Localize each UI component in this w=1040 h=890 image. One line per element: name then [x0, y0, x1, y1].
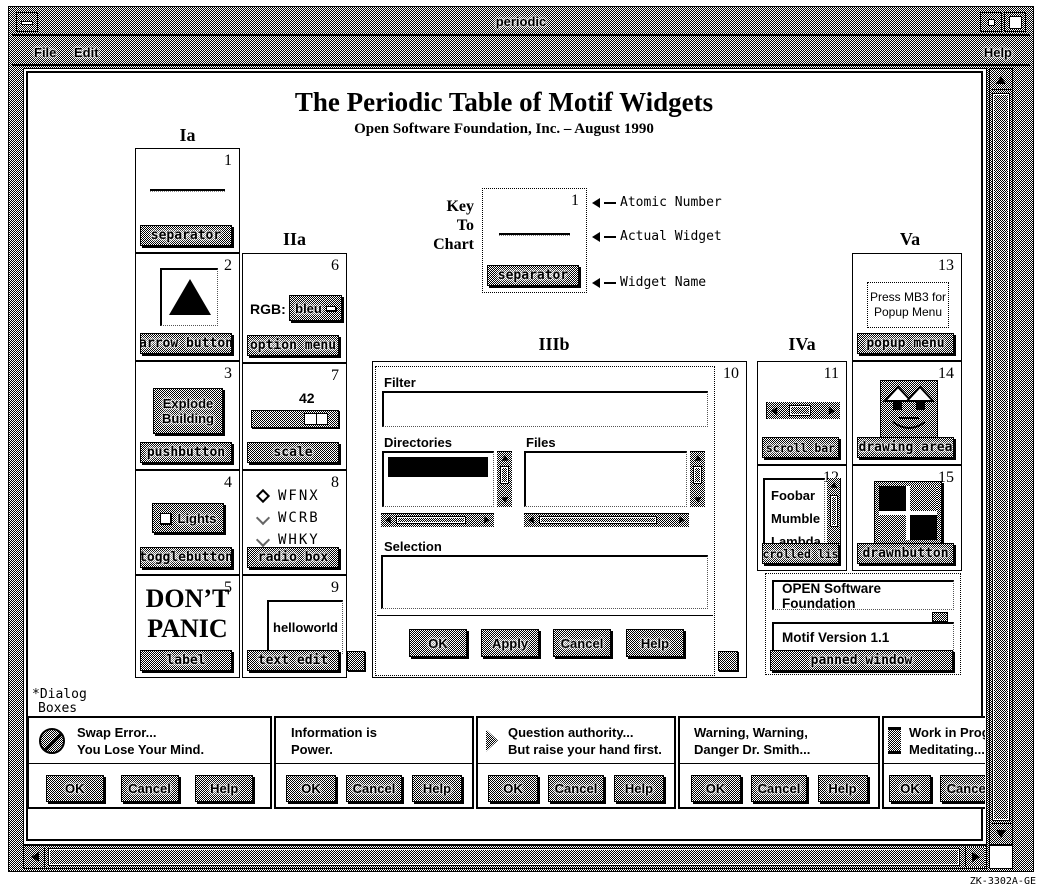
atomic-number: 14	[938, 365, 954, 383]
ok-button[interactable]: OK	[889, 775, 931, 802]
right-arrow-icon	[972, 852, 980, 862]
cell-file-selection: 10 Filter Directories Files	[372, 361, 747, 678]
scrollbar-thumb[interactable]	[693, 466, 702, 484]
key-sample-cell: 1 separator	[482, 188, 587, 293]
left-arrow-icon[interactable]	[528, 517, 534, 524]
atomic-number: 1	[224, 152, 232, 170]
right-arrow-icon[interactable]	[679, 517, 685, 524]
directories-vertical-scrollbar[interactable]	[497, 451, 512, 507]
pane-top: OPEN Software Foundation	[772, 580, 954, 610]
up-arrow-icon[interactable]	[502, 455, 509, 461]
separator-widget	[150, 189, 225, 192]
left-arrow-icon	[592, 232, 600, 242]
selection-input[interactable]	[381, 555, 708, 609]
cell-drawnbutton: 15 drawnbutton	[852, 465, 962, 571]
warning-dialog: Warning, Warning,Danger Dr. Smith... OK …	[678, 716, 880, 809]
scrollbar-down-button[interactable]	[991, 823, 1011, 843]
minimize-icon	[988, 19, 995, 26]
window-title: periodic	[12, 14, 1030, 29]
dialog-boxes-footnote: *Dialog Boxes	[32, 688, 87, 716]
scale-value: 42	[299, 390, 315, 406]
face-drawing-icon	[881, 381, 937, 437]
up-arrow-icon[interactable]	[695, 455, 702, 461]
popup-menu-widget[interactable]: Press MB3 for Popup Menu	[867, 282, 949, 328]
widget-name-button[interactable]: popup menu	[857, 333, 954, 354]
error-icon	[39, 728, 65, 754]
cell-togglebutton: 4 Lights togglebutton	[135, 470, 240, 575]
option-menu-indicator-icon	[326, 306, 336, 311]
menu-help[interactable]: Help	[984, 45, 1012, 60]
files-label: Files	[526, 435, 556, 450]
atomic-number: 9	[331, 579, 339, 597]
vertical-scrollbar[interactable]	[989, 68, 1013, 845]
widget-name-button[interactable]: panned window	[770, 650, 953, 671]
maximize-icon	[1009, 16, 1022, 29]
information-dialog: Information isPower. OK Cancel Help	[274, 716, 474, 809]
atomic-number: 2	[224, 257, 232, 275]
down-arrow-icon	[996, 830, 1006, 838]
rgb-label: RGB:	[250, 301, 286, 317]
widget-name-button[interactable]: drawnbutton	[857, 543, 954, 564]
column-header-iia: IIa	[267, 229, 322, 250]
widget-name-button[interactable]: drawing area	[857, 437, 954, 458]
menu-file[interactable]: File	[34, 45, 56, 60]
menu-edit[interactable]: Edit	[74, 45, 99, 60]
widget-name-button[interactable]: scale	[247, 442, 339, 463]
scrollbar-left-button[interactable]	[25, 847, 45, 867]
widget-name-button[interactable]: scrolled list	[762, 543, 839, 564]
clipped-widget-name-button	[718, 651, 738, 671]
dialog-separator	[377, 615, 713, 616]
up-arrow-icon	[996, 76, 1006, 84]
cell-scale: 7 42 scale	[242, 363, 347, 470]
radio-unselected-icon	[256, 533, 270, 547]
drawnbutton-widget[interactable]	[874, 481, 942, 545]
filter-label: Filter	[384, 375, 416, 390]
titlebar[interactable]: periodic	[12, 10, 1030, 36]
scrollbar-right-button[interactable]	[965, 847, 985, 867]
radio-unselected-icon	[256, 511, 270, 525]
ok-button[interactable]: OK	[46, 775, 104, 802]
radio-option-wcrb[interactable]: WCRB	[258, 507, 320, 529]
widget-name-button[interactable]: separator	[140, 225, 232, 246]
column-header-iva: IVa	[767, 334, 837, 355]
checkbox-icon	[160, 513, 171, 524]
list-item[interactable]: Foobar	[771, 484, 824, 507]
right-arrow-icon[interactable]	[829, 407, 835, 415]
menubar: File Edit Help	[12, 38, 1030, 66]
atomic-number: 6	[331, 257, 339, 275]
cell-option-menu: 6 RGB: bleu option menu	[242, 253, 347, 363]
cell-pushbutton: 3 Explode Building pushbutton	[135, 361, 240, 470]
scrollbar-thumb[interactable]	[992, 93, 1010, 821]
up-arrow-icon	[169, 279, 211, 315]
list-item[interactable]: Mumble	[771, 507, 824, 530]
left-arrow-icon[interactable]	[385, 517, 391, 524]
explode-building-button[interactable]: Explode Building	[153, 388, 223, 434]
key-annotation-widget-name: Widget Name	[592, 275, 706, 290]
screenshot-canvas: periodic File Edit Help The Periodic Tab…	[0, 0, 1040, 890]
scrollbar-thumb[interactable]	[789, 405, 811, 416]
scroll-bar-widget[interactable]	[766, 402, 840, 419]
cancel-button[interactable]: Cancel	[121, 775, 179, 802]
files-horizontal-scrollbar[interactable]	[524, 513, 689, 527]
cell-arrow-button: 2 arrow button	[135, 253, 240, 361]
question-dialog: Question authority...But raise your hand…	[476, 716, 676, 809]
directories-selected-item[interactable]	[388, 457, 488, 477]
horizontal-scrollbar[interactable]	[23, 845, 987, 869]
cell-text-edit: 9 helloworld text edit	[242, 575, 347, 678]
directories-list[interactable]	[382, 451, 494, 507]
cell-drawing-area: 14 drawing area	[852, 361, 962, 465]
working-dialog: Work in ProgressMeditating... OK Cancel	[882, 716, 985, 809]
selection-label: Selection	[384, 539, 442, 554]
drawnbutton-tile-checker	[910, 486, 937, 511]
ok-button[interactable]: OK	[286, 775, 336, 802]
option-menu-button[interactable]: bleu	[289, 295, 342, 321]
filter-input[interactable]	[382, 391, 708, 427]
cell-radio-box: 8 WFNX WCRB WHKY radio box	[242, 470, 347, 575]
cell-scrolled-list: 12 Foobar Mumble Lambda scrolled list	[757, 465, 847, 571]
key-widget-name-button: separator	[487, 265, 579, 286]
key-atomic-number: 1	[571, 192, 579, 210]
pane-sash-handle[interactable]	[932, 612, 948, 622]
widget-name-button[interactable]: radio box	[247, 547, 339, 568]
key-annotation-actual-widget: Actual Widget	[592, 229, 722, 244]
atomic-number: 4	[224, 474, 232, 492]
directories-horizontal-scrollbar[interactable]	[381, 513, 494, 527]
figure-id: ZK-3302A-GE	[970, 876, 1036, 887]
page-subtitle: Open Software Foundation, Inc. – August …	[154, 121, 854, 138]
up-arrow-icon[interactable]	[831, 482, 838, 488]
lights-toggle-button[interactable]: Lights	[152, 503, 224, 533]
page-title: The Periodic Table of Motif Widgets	[154, 87, 854, 118]
scrollbar-thumb[interactable]	[500, 466, 509, 484]
dialog-row: Swap Error...You Lose Your Mind. OK Canc…	[27, 716, 985, 809]
widget-name-button[interactable]: option menu	[247, 335, 339, 356]
scale-thumb[interactable]	[304, 413, 328, 425]
files-vertical-scrollbar[interactable]	[690, 451, 705, 507]
down-arrow-icon[interactable]	[695, 497, 702, 503]
dont-panic-label: DON’TPANIC	[136, 584, 239, 644]
right-arrow-icon[interactable]	[484, 517, 490, 524]
scrollbar-thumb[interactable]	[539, 516, 657, 524]
ok-button[interactable]: OK	[691, 775, 741, 802]
help-button[interactable]: Help	[614, 775, 664, 802]
widget-name-button[interactable]: label	[140, 650, 232, 671]
scale-trough[interactable]	[251, 410, 339, 428]
error-dialog: Swap Error...You Lose Your Mind. OK Canc…	[27, 716, 272, 809]
text-edit-field[interactable]: helloworld	[267, 600, 343, 654]
atomic-number: 8	[331, 474, 339, 492]
cell-label: 5 DON’TPANIC label	[135, 575, 240, 678]
cell-scroll-bar: 11 scroll bar	[757, 361, 847, 465]
key-to-chart-label: KeyToChart	[418, 197, 474, 254]
application-window: periodic File Edit Help The Periodic Tab…	[8, 6, 1034, 872]
help-button[interactable]: Help	[195, 775, 253, 802]
column-header-ia: Ia	[160, 125, 215, 146]
cancel-button[interactable]: Cancel	[553, 629, 611, 657]
cancel-button[interactable]: Cancel	[548, 775, 604, 802]
atomic-number: 13	[938, 257, 954, 275]
cancel-button[interactable]: Cancel	[751, 775, 807, 802]
widget-name-button[interactable]: scroll bar	[762, 437, 839, 458]
cell-popup-menu: 13 Press MB3 for Popup Menu popup menu	[852, 253, 962, 361]
question-icon	[486, 730, 498, 752]
working-icon	[888, 727, 901, 754]
files-list[interactable]	[524, 451, 687, 507]
panned-window-widget: OPEN Software Foundation Motif Version 1…	[765, 573, 961, 675]
drawnbutton-tile-black	[879, 486, 906, 511]
help-button[interactable]: Help	[412, 775, 462, 802]
column-header-va: Va	[880, 229, 940, 250]
file-selection-dialog: Filter Directories Files	[375, 366, 715, 676]
atomic-number: 10	[723, 365, 739, 383]
widget-name-button[interactable]: pushbutton	[140, 442, 232, 463]
radio-selected-icon	[256, 489, 270, 503]
scrollbar-thumb[interactable]	[396, 516, 466, 524]
scrollbar-up-button[interactable]	[991, 70, 1011, 90]
cancel-button[interactable]: Cancel	[940, 775, 985, 802]
ok-button[interactable]: OK	[488, 775, 538, 802]
atomic-number: 3	[224, 365, 232, 383]
cell-separator: 1 separator	[135, 148, 240, 253]
radio-option-wfnx[interactable]: WFNX	[258, 485, 320, 507]
down-arrow-icon[interactable]	[502, 497, 509, 503]
drawnbutton-tile-checker	[879, 515, 906, 540]
resize-corner[interactable]	[989, 845, 1013, 869]
widget-name-button[interactable]: togglebutton	[140, 547, 232, 568]
drawing-area-widget[interactable]	[880, 380, 938, 438]
directories-label: Directories	[384, 435, 452, 450]
atomic-number: 11	[824, 365, 839, 383]
help-button[interactable]: Help	[818, 775, 868, 802]
arrow-button-widget[interactable]	[160, 268, 218, 326]
key-separator-widget	[499, 233, 570, 236]
scrollbar-thumb[interactable]	[48, 848, 960, 866]
atomic-number: 7	[331, 367, 339, 385]
widget-name-button[interactable]: text edit	[247, 650, 339, 671]
help-button[interactable]: Help	[626, 629, 684, 657]
minimize-button[interactable]	[980, 12, 1002, 32]
column-header-iiib: IIIb	[519, 334, 589, 355]
ok-button[interactable]: OK	[409, 629, 467, 657]
key-annotation-atomic-number: Atomic Number	[592, 195, 722, 210]
cancel-button[interactable]: Cancel	[346, 775, 402, 802]
apply-button[interactable]: Apply	[481, 629, 539, 657]
maximize-button[interactable]	[1004, 12, 1026, 32]
clipped-widget-name-button	[347, 651, 365, 671]
left-arrow-icon[interactable]	[771, 407, 777, 415]
main-work-area: The Periodic Table of Motif Widgets Open…	[23, 68, 987, 845]
pane-bottom: Motif Version 1.1	[772, 622, 954, 652]
drawnbutton-tile-black	[910, 515, 937, 540]
left-arrow-icon	[592, 278, 600, 288]
left-arrow-icon	[592, 198, 600, 208]
left-arrow-icon	[31, 852, 39, 862]
widget-name-button[interactable]: arrow button	[140, 333, 232, 354]
scrollbar-thumb[interactable]	[830, 495, 838, 527]
